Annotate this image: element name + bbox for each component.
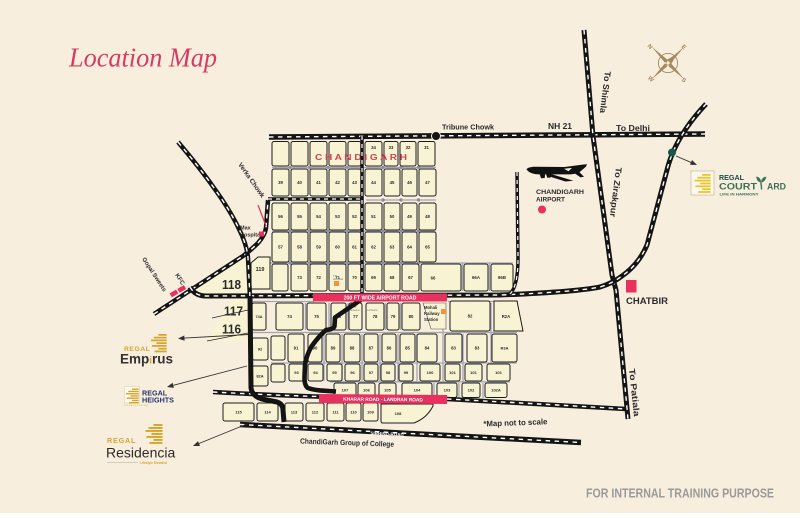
svg-text:101: 101	[470, 370, 477, 375]
svg-text:119: 119	[256, 267, 265, 273]
svg-text:70: 70	[352, 275, 357, 280]
svg-text:98: 98	[386, 370, 391, 375]
svg-text:74: 74	[287, 314, 292, 319]
svg-text:101: 101	[449, 370, 456, 375]
svg-text:105: 105	[384, 388, 391, 393]
svg-text:79: 79	[391, 314, 396, 319]
svg-text:74A: 74A	[256, 315, 263, 319]
svg-text:39: 39	[278, 180, 283, 185]
svg-text:HEIGHTS: HEIGHTS	[142, 396, 174, 405]
svg-text:Residencia: Residencia	[106, 445, 175, 461]
svg-text:CHANDIGARH: CHANDIGARH	[536, 189, 584, 196]
svg-text:84: 84	[425, 346, 430, 351]
svg-text:106: 106	[363, 388, 370, 393]
svg-text:77: 77	[353, 314, 358, 319]
svg-text:FOR INTERNAL TRAINING PURPOSE: FOR INTERNAL TRAINING PURPOSE	[586, 486, 774, 501]
svg-text:108: 108	[395, 411, 402, 416]
svg-text:118: 118	[222, 278, 241, 292]
svg-text:63: 63	[390, 245, 395, 250]
svg-text:34: 34	[371, 145, 376, 150]
svg-text:Lifestyle Elevated: Lifestyle Elevated	[140, 461, 167, 465]
svg-text:92: 92	[258, 346, 263, 351]
svg-text:53: 53	[335, 214, 340, 219]
svg-text:94: 94	[313, 370, 318, 375]
svg-text:ARD: ARD	[767, 182, 786, 192]
svg-text:61: 61	[352, 245, 357, 250]
svg-text:32: 32	[406, 145, 411, 150]
svg-text:87: 87	[369, 346, 374, 351]
svg-text:45: 45	[390, 180, 395, 185]
svg-text:Hospital: Hospital	[240, 233, 262, 239]
svg-text:101: 101	[495, 370, 502, 375]
svg-text:Empirus: Empirus	[120, 352, 173, 367]
svg-text:72: 72	[316, 275, 321, 280]
svg-text:49: 49	[407, 214, 412, 219]
svg-text:AIRPORT: AIRPORT	[536, 197, 565, 204]
svg-text:Max: Max	[240, 226, 252, 232]
svg-text:64: 64	[407, 245, 412, 250]
svg-text:Gurdwara: Gurdwara	[366, 308, 378, 312]
svg-text:69: 69	[371, 275, 376, 280]
svg-text:62: 62	[371, 245, 376, 250]
svg-text:67: 67	[408, 275, 413, 280]
svg-text:75: 75	[314, 314, 319, 319]
svg-text:31: 31	[424, 145, 429, 150]
svg-text:NH 21: NH 21	[548, 121, 572, 131]
svg-text:200 FT WIDE AIRPORT ROAD: 200 FT WIDE AIRPORT ROAD	[344, 296, 417, 302]
svg-text:46: 46	[407, 180, 412, 185]
svg-text:41: 41	[316, 180, 321, 185]
svg-text:107: 107	[342, 388, 349, 393]
svg-text:43: 43	[352, 180, 357, 185]
svg-text:To Delhi: To Delhi	[616, 123, 650, 133]
svg-text:Mohali: Mohali	[424, 305, 437, 310]
svg-text:96: 96	[350, 370, 355, 375]
svg-text:59: 59	[316, 245, 321, 250]
svg-text:100: 100	[427, 370, 434, 375]
svg-text:97: 97	[369, 370, 374, 375]
svg-text:117: 117	[224, 305, 243, 319]
svg-text:CHATBIR: CHATBIR	[626, 296, 669, 306]
svg-text:104: 104	[414, 388, 421, 393]
svg-text:R2A: R2A	[502, 314, 511, 319]
svg-text:88: 88	[350, 346, 355, 351]
svg-text:Station: Station	[424, 317, 439, 322]
svg-text:Hospital: Hospital	[333, 277, 343, 281]
svg-text:47: 47	[425, 180, 430, 185]
svg-text:R3A: R3A	[500, 345, 508, 350]
svg-text:44: 44	[371, 180, 376, 185]
svg-text:KHARAR ROAD - LANDRAN ROAD: KHARAR ROAD - LANDRAN ROAD	[343, 397, 423, 404]
svg-text:65: 65	[425, 245, 430, 250]
svg-text:40: 40	[297, 180, 302, 185]
svg-text:51: 51	[371, 214, 376, 219]
svg-text:93: 93	[294, 370, 299, 375]
svg-text:83: 83	[451, 346, 456, 351]
svg-text:89: 89	[331, 346, 336, 351]
svg-text:102A: 102A	[491, 388, 501, 393]
svg-text:LIFE IN HARMONY: LIFE IN HARMONY	[720, 193, 760, 197]
svg-text:Location Map: Location Map	[68, 43, 217, 73]
svg-text:57: 57	[278, 245, 283, 250]
svg-text:COURT: COURT	[719, 182, 758, 192]
svg-text:103: 103	[444, 388, 451, 393]
svg-text:99: 99	[404, 370, 409, 375]
svg-text:109: 109	[367, 409, 374, 414]
svg-text:111: 111	[332, 409, 339, 414]
svg-text:73: 73	[297, 275, 302, 280]
svg-text:54: 54	[316, 214, 321, 219]
svg-text:66B: 66B	[498, 275, 506, 280]
svg-text:82A: 82A	[256, 373, 263, 378]
svg-text:Tribune Chowk: Tribune Chowk	[442, 125, 494, 132]
svg-text:82: 82	[468, 314, 473, 319]
svg-text:33: 33	[389, 145, 394, 150]
svg-text:Railway: Railway	[424, 311, 440, 316]
svg-text:114: 114	[264, 409, 271, 414]
svg-text:110: 110	[350, 409, 357, 414]
svg-text:83: 83	[475, 346, 480, 351]
svg-text:102: 102	[468, 388, 475, 393]
svg-text:58: 58	[297, 245, 302, 250]
svg-text:50: 50	[390, 214, 395, 219]
svg-text:116: 116	[222, 323, 241, 337]
svg-text:55: 55	[297, 214, 302, 219]
svg-text:80: 80	[409, 314, 414, 319]
svg-text:60: 60	[335, 245, 340, 250]
svg-text:86: 86	[387, 346, 392, 351]
svg-text:42: 42	[335, 180, 340, 185]
svg-text:78: 78	[373, 314, 378, 319]
svg-text:115: 115	[235, 409, 242, 414]
svg-text:66A: 66A	[472, 275, 480, 280]
svg-text:66: 66	[431, 276, 436, 281]
svg-text:85: 85	[405, 346, 410, 351]
svg-text:113: 113	[291, 409, 298, 414]
svg-text:112: 112	[312, 409, 319, 414]
svg-text:56: 56	[278, 214, 283, 219]
svg-text:68: 68	[390, 275, 395, 280]
svg-text:48: 48	[425, 214, 430, 219]
svg-text:95: 95	[332, 370, 337, 375]
svg-text:52: 52	[352, 214, 357, 219]
svg-text:91: 91	[294, 346, 299, 351]
